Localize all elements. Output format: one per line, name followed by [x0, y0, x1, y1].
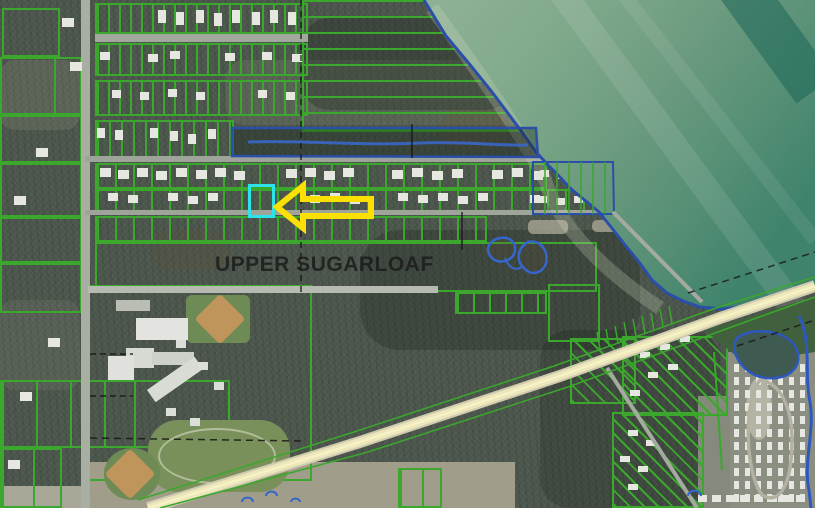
trailer-top-row4	[188, 134, 196, 144]
trailer-row-bottom-corner	[768, 495, 777, 502]
houses-canal-lots	[556, 198, 565, 205]
houses-street1-row	[452, 169, 463, 178]
trailer-park-grid	[756, 377, 761, 385]
houses-canal-lots	[540, 170, 549, 177]
trailer-park-grid	[800, 390, 805, 398]
trailer-park-grid	[756, 364, 761, 372]
trailer-park-grid	[800, 468, 805, 476]
trailers-se-2	[646, 440, 656, 446]
trailer-row-bottom-corner	[740, 495, 749, 502]
diag-lots-3	[570, 338, 636, 404]
houses-street2-row	[108, 193, 118, 201]
trailer-top-row2	[100, 52, 110, 60]
lot-comb-east	[455, 292, 547, 314]
houses-canal-lots	[604, 196, 613, 203]
sand-street-patch-1	[528, 220, 568, 234]
trailer-top-row1	[176, 12, 184, 25]
houses-canal-lots	[538, 196, 547, 203]
houses-street1-row	[100, 168, 111, 177]
trailer-top-row3	[168, 89, 177, 97]
school-small-structures	[198, 362, 208, 370]
trailer-park-grid	[800, 416, 805, 424]
houses-street1-row	[305, 168, 316, 177]
trailer-park-grid	[756, 429, 761, 437]
trailer-park-grid	[745, 364, 750, 372]
trailer-park-grid	[745, 403, 750, 411]
houses-west-column	[8, 460, 20, 469]
trailer-top-row1	[232, 10, 240, 23]
trailer-top-row4	[170, 131, 178, 141]
trailer-park-grid	[778, 364, 783, 372]
trailer-park-grid	[767, 481, 772, 489]
trailer-row-bottom-corner	[726, 495, 735, 502]
trailers-se-1	[668, 364, 678, 370]
houses-street2-row	[330, 193, 340, 201]
trailer-park-grid	[778, 390, 783, 398]
houses-street2-row	[398, 193, 408, 201]
trailer-park-grid	[745, 481, 750, 489]
houses-street1-row	[512, 168, 523, 177]
trailer-park-grid	[789, 403, 794, 411]
trailer-park-grid	[778, 442, 783, 450]
trailers-se-1	[680, 336, 690, 342]
school-small-structures	[176, 340, 186, 348]
houses-street2-row	[310, 195, 320, 203]
trailer-top-row2	[148, 54, 158, 62]
houses-street1-row	[156, 171, 167, 180]
trailers-se-1	[640, 352, 650, 358]
trailer-park-grid	[745, 377, 750, 385]
school-parking	[116, 300, 150, 311]
houses-street2-row	[478, 193, 488, 201]
houses-street1-row	[324, 171, 335, 180]
trailer-park-grid	[789, 377, 794, 385]
trailers-se-2	[628, 430, 638, 436]
trailer-park-grid	[734, 416, 739, 424]
houses-street1-row	[412, 168, 423, 177]
trailer-park-grid	[734, 403, 739, 411]
houses-west-column	[48, 338, 60, 347]
lot-row-3	[95, 216, 487, 242]
houses-canal-lots	[558, 172, 567, 179]
houses-street1-row	[392, 170, 403, 179]
trailer-row-bottom-corner	[712, 495, 721, 502]
trailer-park-grid	[767, 364, 772, 372]
trailer-top-row2	[225, 53, 235, 61]
trailer-park-grid	[734, 442, 739, 450]
trailer-park-grid	[778, 468, 783, 476]
houses-street1-row	[215, 168, 226, 177]
trailer-top-row3	[196, 92, 205, 100]
school-small-structures	[166, 408, 176, 416]
big-lot-east	[548, 284, 600, 342]
trailer-top-row2	[170, 51, 180, 59]
parcel-west-6	[0, 263, 82, 313]
trailer-park-grid	[734, 455, 739, 463]
houses-street1-row	[196, 170, 207, 179]
trailer-row-bottom-corner	[754, 495, 763, 502]
trailer-park-grid	[778, 377, 783, 385]
trailer-park-grid	[789, 481, 794, 489]
trailer-top-row1	[196, 10, 204, 23]
highlighted-parcel-outline	[248, 184, 275, 218]
houses-west-column	[20, 392, 32, 401]
school-field-track	[158, 428, 276, 484]
trailer-park-grid	[789, 468, 794, 476]
school-road	[88, 286, 438, 293]
houses-canal-lots	[594, 172, 603, 179]
trailer-park-grid	[789, 416, 794, 424]
houses-street2-row	[350, 196, 360, 204]
houses-street2-row	[188, 196, 198, 204]
houses-street2-row	[208, 193, 218, 201]
trailer-park-grid	[734, 390, 739, 398]
trailer-park-grid	[789, 364, 794, 372]
trailer-park-grid	[789, 442, 794, 450]
trailer-park-grid	[767, 416, 772, 424]
school-small-structures	[214, 382, 224, 390]
bottom-mid-lots	[398, 468, 442, 508]
trailer-park-grid	[767, 468, 772, 476]
trailer-park-grid	[767, 429, 772, 437]
trailers-se-1	[648, 372, 658, 378]
parcel-west-4	[0, 163, 82, 217]
trailer-park-grid	[745, 390, 750, 398]
houses-west-column	[36, 148, 48, 157]
trailer-park-grid	[778, 481, 783, 489]
school-small-structures	[190, 418, 200, 426]
parcel-west-1	[2, 8, 60, 57]
trailer-park-grid	[756, 481, 761, 489]
trailer-park-grid	[745, 429, 750, 437]
houses-canal-lots	[576, 170, 585, 177]
trailer-top-row4	[150, 128, 158, 138]
trailer-park-grid	[756, 468, 761, 476]
trailer-park-grid	[800, 442, 805, 450]
houses-west-column	[14, 196, 26, 205]
trailer-park-grid	[778, 429, 783, 437]
houses-west-column	[62, 18, 74, 27]
trailer-park-grid	[778, 455, 783, 463]
trailer-park-grid	[745, 455, 750, 463]
trailer-park-grid	[767, 377, 772, 385]
trailer-park-grid	[756, 403, 761, 411]
trailer-park-grid	[734, 468, 739, 476]
trailer-top-row2	[262, 52, 272, 60]
trailer-row-bottom-corner	[796, 495, 805, 502]
houses-street1-row	[234, 171, 245, 180]
trailer-top-row2	[292, 54, 302, 62]
trailer-park-grid	[745, 442, 750, 450]
trailer-park-grid	[734, 364, 739, 372]
trailer-row-bottom-corner	[698, 495, 707, 502]
houses-canal-lots	[592, 198, 601, 205]
houses-street1-row	[343, 168, 354, 177]
trailer-park-grid	[756, 416, 761, 424]
trailers-se-2	[638, 466, 648, 472]
trailer-park-grid	[800, 364, 805, 372]
school-building-1	[136, 318, 188, 340]
trailer-top-row1	[270, 10, 278, 23]
trailer-park-grid	[800, 403, 805, 411]
trailer-park-grid	[734, 429, 739, 437]
trailer-top-row4	[208, 129, 216, 139]
trailers-se-1	[660, 344, 670, 350]
trailer-top-row3	[258, 90, 267, 98]
houses-west-column	[70, 62, 82, 71]
houses-street1-row	[432, 171, 443, 180]
houses-canal-lots	[574, 196, 583, 203]
houses-street1-row	[492, 170, 503, 179]
trailer-top-row1	[158, 10, 166, 23]
trailers-se-2	[628, 484, 638, 490]
trailers-se-2	[620, 456, 630, 462]
trailer-top-row1	[214, 13, 222, 26]
street-top	[95, 34, 308, 42]
diag-lots-1	[622, 336, 728, 416]
trailer-top-row1	[252, 12, 260, 25]
aerial-parcel-map: UPPER SUGARLOAF	[0, 0, 815, 508]
trailer-park-grid	[800, 377, 805, 385]
trailer-park-grid	[734, 481, 739, 489]
lot-row-top-2	[95, 43, 308, 76]
houses-street2-row	[168, 193, 178, 201]
trailer-park-grid	[778, 416, 783, 424]
trailer-top-row3	[140, 92, 149, 100]
trailer-park-grid	[734, 377, 739, 385]
houses-street1-row	[118, 170, 129, 179]
trailer-park-grid	[800, 455, 805, 463]
houses-street2-row	[418, 195, 428, 203]
trailer-park-grid	[800, 429, 805, 437]
trailer-park-grid	[789, 429, 794, 437]
trailer-park-grid	[767, 403, 772, 411]
street-2	[85, 210, 615, 215]
road-west-vertical	[81, 0, 90, 508]
trailer-top-row3	[286, 92, 295, 100]
houses-street1-row	[286, 169, 297, 178]
parcel-west-grid-c	[0, 448, 62, 508]
houses-street2-row	[128, 195, 138, 203]
street-1	[85, 156, 555, 162]
trailer-row-bottom-corner	[782, 495, 791, 502]
trailer-park-grid	[756, 455, 761, 463]
trailer-park-grid	[767, 390, 772, 398]
parcel-west-5	[0, 217, 82, 263]
houses-street2-row	[438, 193, 448, 201]
sand-street-patch-2	[592, 220, 618, 232]
trailer-park-grid	[789, 390, 794, 398]
trailer-park-grid	[745, 468, 750, 476]
trailer-park-grid	[800, 481, 805, 489]
trailer-park-grid	[756, 442, 761, 450]
houses-street1-row	[176, 168, 187, 177]
trailer-park-grid	[767, 455, 772, 463]
trailer-top-row1	[288, 12, 296, 25]
houses-street2-row	[458, 196, 468, 204]
trailer-top-row3	[112, 90, 121, 98]
trailers-se-1	[630, 390, 640, 396]
area-label-upper-sugarloaf: UPPER SUGARLOAF	[215, 253, 434, 277]
trailer-park-grid	[745, 416, 750, 424]
houses-street1-row	[137, 168, 148, 177]
trailer-park-grid	[789, 455, 794, 463]
trailer-park-grid	[756, 390, 761, 398]
parcel-west-2a	[0, 57, 56, 115]
trailer-top-row4	[97, 128, 105, 138]
scrub-left-2	[0, 300, 80, 390]
school-building-4	[108, 356, 134, 380]
trailer-park-grid	[767, 442, 772, 450]
trailer-park-grid	[778, 403, 783, 411]
trailer-top-row4	[115, 130, 123, 140]
